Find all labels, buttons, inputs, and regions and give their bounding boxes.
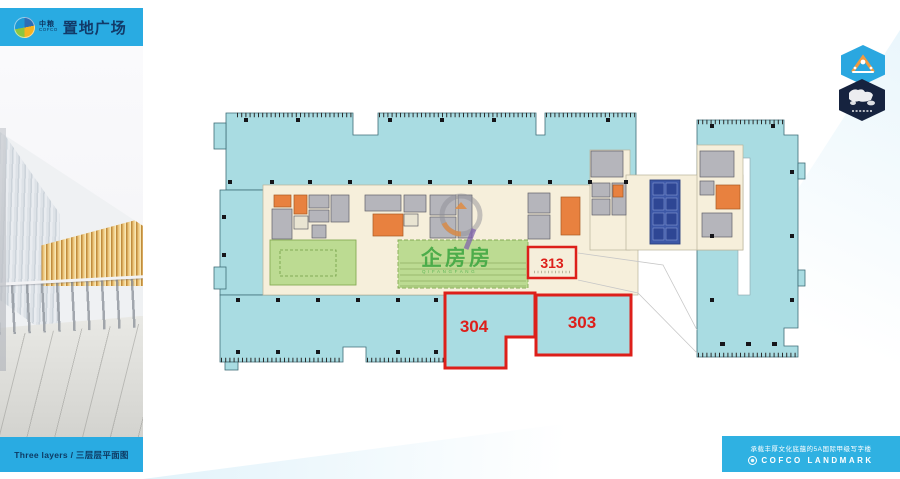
footer-brand: COFCO LANDMARK: [748, 456, 873, 465]
tower-tab-top: [798, 163, 805, 179]
brand-header: 中粮 COFCO 置地广场: [0, 8, 143, 46]
photo-floor-tiles: [0, 324, 143, 437]
left-office-wing: [220, 190, 266, 295]
globe-icon: [748, 456, 757, 465]
unit-304[interactable]: 304: [445, 293, 535, 368]
unit-304-label: 304: [460, 317, 489, 336]
unit-303-label: 303: [568, 313, 596, 332]
project-title: 置地广场: [63, 17, 127, 38]
watermark-cn: 企房房: [420, 246, 493, 270]
photo-railing-posts: [0, 278, 143, 335]
background-wash-bottom: [143, 424, 563, 479]
left-tab-mid: [214, 267, 226, 289]
floor-plan: 304 303 313 企房房 QIFANGFANG: [208, 95, 808, 385]
left-column: 中粮 COFCO 置地广场 Three layers / 三层层平面图: [0, 0, 143, 479]
cofco-logo-icon: [14, 17, 35, 38]
footer-bar: 承载丰厚文化底蕴的5A国际甲级写字楼 COFCO LANDMARK: [722, 436, 900, 472]
left-tab-top: [214, 123, 226, 149]
unit-313[interactable]: 313: [528, 247, 576, 278]
tower-tab-mid: [798, 270, 805, 286]
blue-hall: [650, 180, 680, 244]
bottom-office-band: [220, 295, 445, 362]
lobby-photo: [0, 46, 143, 437]
top-office-band: [226, 113, 636, 190]
logo-en-label: COFCO: [39, 28, 58, 33]
bottom-tab: [225, 362, 238, 370]
cofco-logo-text: 中粮 COFCO: [39, 21, 58, 33]
garden-west: [270, 240, 356, 285]
footer-tagline: 承载丰厚文化底蕴的5A国际甲级写字楼: [751, 443, 872, 453]
slide: 中粮 COFCO 置地广场 Three layers / 三层层平面图: [0, 0, 900, 479]
floor-caption-bar: Three layers / 三层层平面图: [0, 437, 143, 472]
floor-caption: Three layers / 三层层平面图: [14, 449, 128, 461]
photo-left-edge: [0, 128, 6, 370]
watermark-en: QIFANGFANG: [422, 269, 477, 274]
unit-313-label: 313: [540, 255, 564, 271]
footer-brand-name: COFCO LANDMARK: [761, 456, 873, 465]
unit-303[interactable]: 303: [536, 295, 631, 355]
